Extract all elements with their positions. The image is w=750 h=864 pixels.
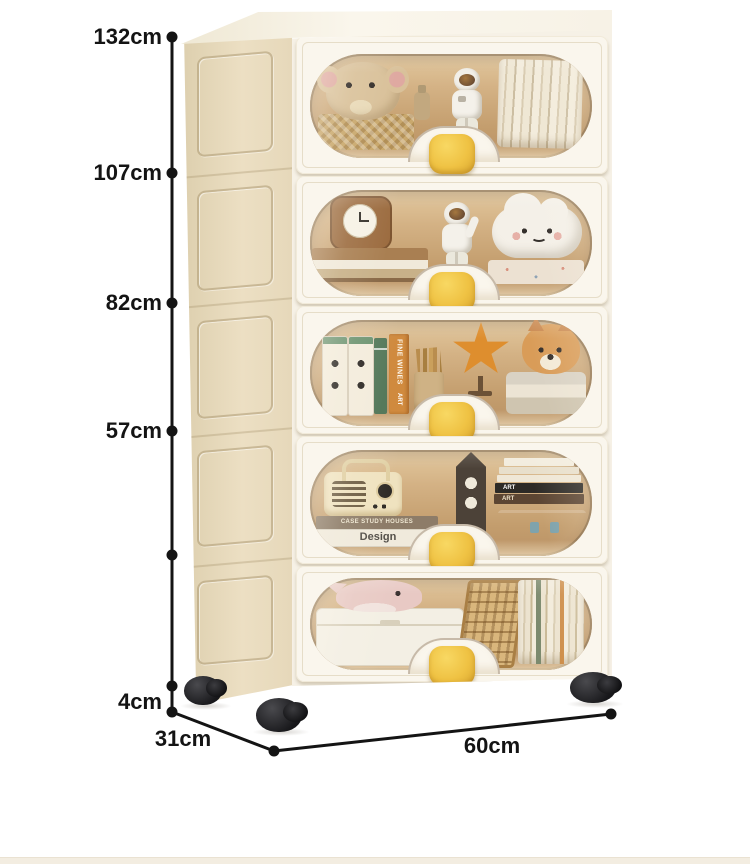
radio-handle xyxy=(342,459,390,481)
chest-clasp xyxy=(530,522,539,533)
elephant-plush xyxy=(326,62,400,120)
product-image: FINE WINES ART xyxy=(0,0,750,864)
book-spine xyxy=(499,467,579,474)
book-stack xyxy=(497,59,583,149)
dimension-dot-82cm xyxy=(167,298,178,309)
width-label-60cm: 60cm xyxy=(456,735,528,757)
side-recess-panel xyxy=(197,185,273,292)
whale-plush xyxy=(336,580,422,612)
astronaut-figurine xyxy=(438,202,476,270)
wooden-clock xyxy=(330,196,392,250)
starfish-stand xyxy=(478,376,483,392)
dimension-dot-width xyxy=(606,709,617,720)
width-dimension-line xyxy=(274,714,611,751)
side-seam xyxy=(182,427,292,439)
height-label-57cm: 57cm xyxy=(90,420,162,442)
shiba-dog-plush xyxy=(522,324,580,374)
background-floor-strip xyxy=(0,857,750,864)
wooden-chest xyxy=(498,510,586,544)
dimension-dot-tier5 xyxy=(167,550,178,561)
book-spine xyxy=(497,475,581,482)
patterned-box xyxy=(488,260,584,284)
drawer-1-handle xyxy=(429,134,475,174)
side-seam xyxy=(182,297,292,309)
side-recess-panel xyxy=(197,575,273,666)
side-recess-panel xyxy=(197,51,273,158)
book-spine-text: ART xyxy=(396,390,402,408)
astronaut-helmet xyxy=(454,68,480,92)
caster-wheel-front-left xyxy=(256,698,302,732)
ring-binder xyxy=(322,336,348,416)
astronaut-helmet xyxy=(444,202,470,226)
height-label-132cm: 132cm xyxy=(90,26,162,48)
art-book-stack: ART ART xyxy=(494,458,584,510)
depth-label-31cm: 31cm xyxy=(147,728,219,750)
folded-blankets xyxy=(506,372,586,414)
cloud-smile xyxy=(531,232,547,242)
book-spine-art: ART xyxy=(495,483,583,493)
height-label-82cm: 82cm xyxy=(90,292,162,314)
caster-wheel-rear-left xyxy=(184,676,222,705)
clock-tower-ornament xyxy=(456,452,486,534)
dimension-dot-107cm xyxy=(167,168,178,179)
retro-radio xyxy=(324,472,402,516)
green-book xyxy=(374,338,387,414)
book-spine-art: ART xyxy=(494,494,584,504)
drawer-4: CASE STUDY HOUSES Design ART ART xyxy=(296,436,608,564)
side-seam xyxy=(182,557,292,569)
chest-clasp xyxy=(550,522,559,533)
cabinet-side-panel xyxy=(182,36,292,704)
astronaut-visor xyxy=(449,208,465,220)
drawer-5 xyxy=(296,566,608,682)
drawer-3: FINE WINES ART xyxy=(296,306,608,434)
drawer-5-handle xyxy=(429,646,475,686)
drawer-2 xyxy=(296,176,608,304)
side-recess-panel xyxy=(197,315,273,420)
side-seam xyxy=(182,167,292,179)
ring-binder xyxy=(348,336,374,416)
radio-grille xyxy=(332,481,366,507)
radio-knob xyxy=(378,484,392,498)
book-pile xyxy=(312,248,428,282)
clock-minute-hand xyxy=(360,220,369,222)
fine-wines-book: FINE WINES ART xyxy=(389,334,409,414)
side-recess-panel xyxy=(197,445,273,548)
dimension-dot-depth xyxy=(269,746,280,757)
dimension-dot-132cm xyxy=(167,32,178,43)
case-study-book: CASE STUDY HOUSES xyxy=(316,516,438,529)
astronaut-visor xyxy=(459,74,475,86)
dimension-dot-ground xyxy=(167,707,178,718)
height-label-107cm: 107cm xyxy=(90,162,162,184)
height-label-4cm: 4cm xyxy=(90,691,162,713)
astronaut-body xyxy=(452,90,482,120)
lotion-bottle xyxy=(414,92,430,120)
astronaut-chest-pack xyxy=(458,96,466,102)
starfish-ornament xyxy=(452,322,510,378)
caster-wheel-right xyxy=(570,672,616,703)
book-spine-text: FINE WINES xyxy=(396,334,403,390)
cloud-plush xyxy=(492,206,582,258)
radio-buttons xyxy=(372,504,388,509)
dimension-dot-57cm xyxy=(167,426,178,437)
dimension-dot-4cm-top xyxy=(167,681,178,692)
book-spine xyxy=(504,458,574,466)
cabinet-front: FINE WINES ART xyxy=(292,30,612,686)
book-row xyxy=(518,580,584,664)
clock-face xyxy=(343,204,377,238)
astronaut-body xyxy=(442,224,472,254)
drawer-1 xyxy=(296,36,608,174)
